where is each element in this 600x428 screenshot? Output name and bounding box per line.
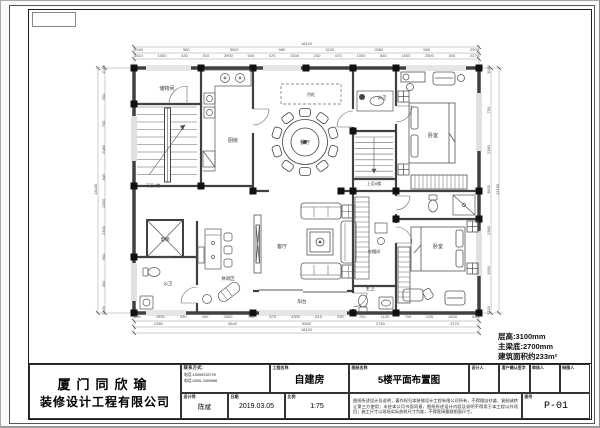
dim-right-overall: 13180 bbox=[494, 68, 502, 313]
dim-label: 2300 bbox=[102, 227, 106, 235]
dim-label: 18100 bbox=[301, 328, 312, 332]
label-balcony: 阳台 bbox=[298, 298, 307, 305]
company-name-line1: 厦门同欣瑜 bbox=[57, 374, 152, 393]
dim-label: 1000 bbox=[356, 54, 365, 58]
cad-viewport: 储物间 厨房 餐厅 吊柜 公卫 卧室 卧室 衣帽间 主卫 客厅 阳台 休闲区 公… bbox=[0, 0, 600, 428]
dim-label: 700 bbox=[102, 120, 106, 128]
floor-height: 层高:3100mm bbox=[498, 332, 590, 342]
dim-label: 700 bbox=[359, 315, 366, 319]
dim-label: 1590 bbox=[487, 267, 491, 275]
dim-label: 635 bbox=[426, 315, 433, 319]
dim-label: 980 bbox=[279, 48, 286, 52]
dim-label: 2580 bbox=[374, 48, 383, 52]
dim-label: 240 bbox=[314, 54, 321, 58]
dim-label: 930 bbox=[337, 315, 344, 319]
contact-label: 联系方式: bbox=[184, 366, 204, 371]
designer-label: 设计师 bbox=[184, 395, 196, 399]
label-closet: 衣帽间 bbox=[368, 248, 381, 255]
project-cell: 工程名称 自建房 bbox=[270, 364, 349, 393]
dim-label: 2270 bbox=[470, 54, 479, 58]
dim-label: 13180 bbox=[94, 187, 98, 195]
dim-label: 2500 bbox=[224, 315, 233, 319]
dim-label: 510 bbox=[203, 54, 210, 58]
building-area: 建筑面积约233m² bbox=[498, 352, 590, 362]
dim-label: 13180 bbox=[496, 187, 500, 195]
notes-cell: 图纸所述设计及说明，著作权归本装修设计工程有限公司所有，不得擅自抄袭、复制或转让… bbox=[349, 393, 522, 419]
dim-label: 430 bbox=[134, 315, 141, 319]
label-stairs-down: 下至4楼 bbox=[146, 182, 160, 188]
label-dining: 餐厅 bbox=[300, 139, 310, 146]
dim-label: 2380 bbox=[487, 227, 491, 235]
beam-bottom: 主梁底:2700mm bbox=[498, 342, 590, 352]
dim-label: 2395 bbox=[102, 307, 106, 315]
label-bedroom-bottom: 卧室 bbox=[433, 243, 443, 250]
sheet-number: P-01 bbox=[523, 394, 589, 418]
label-bedroom-top: 卧室 bbox=[428, 132, 438, 139]
dim-label: 560 bbox=[380, 54, 387, 58]
dim-label: 1800 bbox=[448, 315, 457, 319]
dim-label: 2750 bbox=[376, 322, 385, 326]
dim-label: 2500 bbox=[425, 54, 434, 58]
phone-1: 电话:15959233799 bbox=[184, 373, 217, 379]
dim-label: 2360 bbox=[154, 322, 163, 326]
dim-label: 3220 bbox=[325, 48, 334, 52]
dim-label: 470 bbox=[269, 54, 276, 58]
dim-label: 670 bbox=[335, 54, 342, 58]
sign-label: 设计人 bbox=[472, 366, 484, 370]
notes-text: 图纸所述设计及说明，著作权归本装修设计工程有限公司所有，不得擅自抄袭、复制或转让… bbox=[350, 394, 521, 416]
dim-label: 2500 bbox=[470, 48, 479, 52]
label-master-bath: 主卫 bbox=[366, 285, 375, 291]
dim-label: 610 bbox=[315, 315, 322, 319]
drawing-name-cell: 图纸名称 5楼平面布置图 bbox=[349, 364, 469, 393]
title-block: 厦门同欣瑜 装修设计工程有限公司 联系方式: 电话:15959233799 电话… bbox=[28, 363, 592, 420]
dim-bottom-overall: 18100 bbox=[134, 328, 479, 332]
sign-cell-drafter: 制图人 bbox=[560, 364, 590, 393]
dim-label: 740 bbox=[248, 315, 255, 319]
drawing-name: 5楼平面布置图 bbox=[350, 365, 468, 392]
sheet-number-cell: 图号 P-01 bbox=[522, 393, 590, 419]
sheet-number-label: 图号 bbox=[525, 395, 533, 399]
dim-label: 300 bbox=[102, 93, 106, 101]
label-bath-top: 公卫 bbox=[378, 95, 387, 100]
dim-label: 3800 bbox=[487, 186, 491, 194]
dim-label: 700 bbox=[487, 106, 491, 114]
dim-label: 2900 bbox=[224, 54, 233, 58]
label-stairs-up: 上至6楼 bbox=[367, 180, 381, 186]
dim-label: 1250 bbox=[487, 307, 491, 315]
dim-label: 1080 bbox=[487, 66, 491, 74]
dim-top-overall: 18100 bbox=[134, 42, 479, 46]
phone-2: 电话:0595-7689988 bbox=[184, 379, 217, 385]
sign-label: 审核人 bbox=[532, 366, 544, 370]
scale-cell: 比例 1:75 bbox=[285, 393, 349, 419]
dim-label: 450 bbox=[102, 280, 106, 288]
label-bath-left: 公卫 bbox=[164, 281, 173, 286]
sign-cell-designer: 设计人 bbox=[469, 364, 499, 393]
label-living: 客厅 bbox=[277, 243, 287, 250]
dim-label: 2080 bbox=[102, 146, 106, 154]
dim-label: 3770 bbox=[450, 322, 459, 326]
dim-label: 980 bbox=[183, 48, 190, 52]
dim-label: 430 bbox=[180, 315, 187, 319]
dim-label: 1500 bbox=[401, 54, 410, 58]
label-elevator: 电梯 bbox=[161, 236, 170, 243]
dim-label: 540 bbox=[247, 54, 254, 58]
date-label: 日期 bbox=[231, 395, 239, 399]
scale-label: 比例 bbox=[288, 395, 296, 399]
dim-label: 1500 bbox=[290, 54, 299, 58]
sign-label: 客户确认签字 bbox=[502, 366, 526, 370]
dim-label: 4300 bbox=[291, 315, 300, 319]
drawing-name-label: 图纸名称 bbox=[352, 366, 368, 370]
dim-top-mid: 29409803920980322025809802500 bbox=[134, 48, 479, 52]
dim-label: 700 bbox=[405, 315, 412, 319]
dim-label: 400 bbox=[202, 315, 209, 319]
dim-label: 2940 bbox=[134, 48, 143, 52]
company-name-line2: 装修设计工程有限公司 bbox=[40, 393, 170, 410]
dim-label: 1120 bbox=[381, 315, 390, 319]
dim-bottom-mid: 23603640558027503770 bbox=[154, 322, 459, 326]
sign-label: 制图人 bbox=[562, 366, 574, 370]
designer-cell: 设计师 陈斌 bbox=[181, 393, 228, 419]
sign-cell-auditor: 审核人 bbox=[530, 364, 560, 393]
dim-bottom-detail: 4301500430400250074067043006109307001120… bbox=[134, 315, 479, 319]
dim-left-overall: 13180 bbox=[92, 68, 100, 313]
dim-label: 430 bbox=[181, 54, 188, 58]
dim-label: 3920 bbox=[230, 48, 239, 52]
dim-label: 600 bbox=[102, 253, 106, 261]
dim-label: 1000 bbox=[158, 54, 167, 58]
dim-label: 1510 bbox=[134, 54, 143, 58]
dim-label: 500 bbox=[449, 54, 456, 58]
contact-cell: 联系方式: 电话:15959233799 电话:0595-7689988 bbox=[181, 364, 270, 393]
dim-label: 2380 bbox=[102, 200, 106, 208]
dim-left-detail: 11303007002080845238023006004502395 bbox=[100, 68, 108, 313]
label-hang-cabinet: 吊柜 bbox=[307, 91, 315, 97]
label-leisure: 休闲区 bbox=[221, 275, 235, 282]
dim-label: 670 bbox=[269, 315, 276, 319]
label-kitchen: 厨房 bbox=[228, 137, 238, 144]
dim-label: 1500 bbox=[156, 315, 165, 319]
date-cell: 日期 2019.03.05 bbox=[228, 393, 285, 419]
dim-label: 845 bbox=[102, 173, 106, 181]
dim-top-detail: 1510100043051029005404701500240670100056… bbox=[134, 54, 479, 58]
project-label: 工程名称 bbox=[273, 366, 289, 370]
dim-label: 3640 bbox=[228, 322, 237, 326]
dim-label: 2380 bbox=[487, 146, 491, 154]
dim-right-detail: 108070023803800238015901250 bbox=[485, 68, 493, 313]
sign-cell-client: 客户确认签字 bbox=[499, 364, 529, 393]
dim-label: 1130 bbox=[102, 66, 106, 74]
dim-label: 635 bbox=[472, 315, 479, 319]
dim-label: 18100 bbox=[301, 42, 312, 46]
dim-label: 5580 bbox=[302, 322, 311, 326]
company-cell: 厦门同欣瑜 装修设计工程有限公司 bbox=[29, 364, 181, 419]
building-info-block: 层高:3100mm 主梁底:2700mm 建筑面积约233m² bbox=[498, 332, 590, 361]
dim-label: 980 bbox=[423, 48, 430, 52]
label-storage: 储物间 bbox=[159, 85, 174, 92]
